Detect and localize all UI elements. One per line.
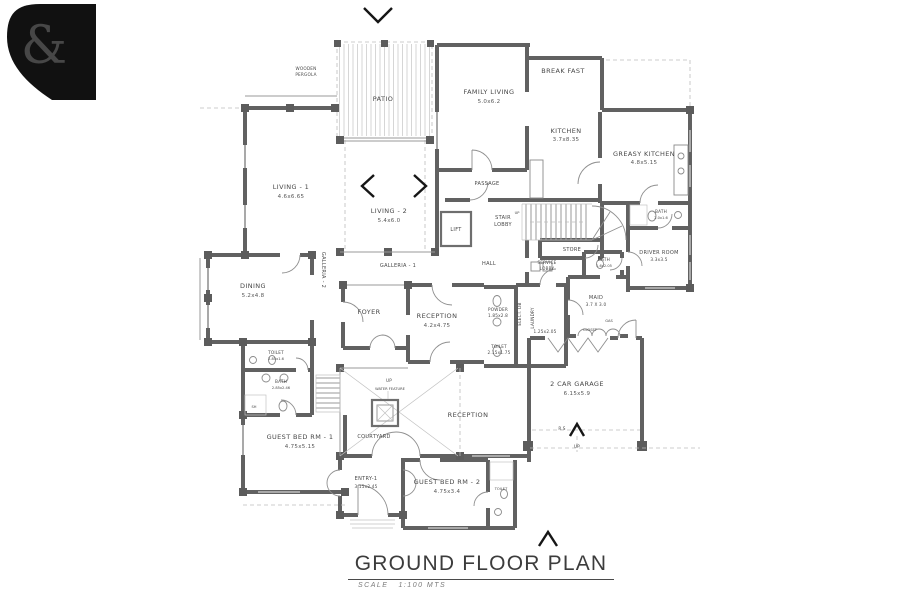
room-label-bath-driver: BATH [655, 209, 667, 214]
room-dims-bath-driver: 2.0x1.6 [654, 216, 668, 220]
room-labels: WOODEN PERGOLA PATIO FAMILY LIVING 5.0x6… [240, 66, 679, 495]
room-label-closet: CLOSET [583, 328, 598, 332]
room-label-hall: HALL [482, 261, 496, 267]
room-dims-entry1: 3.15x2.45 [355, 484, 378, 489]
windows [208, 112, 690, 528]
room-label-reception1: RECEPTION [417, 312, 458, 320]
drawing-title: GROUND FLOOR PLAN [348, 552, 614, 580]
room-label-service-lobby2: LOBBY [540, 266, 555, 271]
room-dims-guest-bed2: 4.75x3.4 [434, 489, 461, 495]
room-label-galleria1: GALLERIA - 1 [380, 263, 416, 269]
room-label-courtyard: COURTYARD [357, 434, 390, 440]
room-dims-guest-bed1: 4.75x5.15 [285, 444, 316, 450]
room-label-foyer: FOYER [357, 308, 380, 316]
room-label-dining: DINING [240, 282, 266, 290]
room-label-toilet-powder: TOILET [490, 344, 507, 349]
room-label-passage: PASSAGE [474, 181, 499, 187]
room-dims-maid: 3.7 X 3.0 [586, 302, 607, 307]
room-label-lift: LIFT [450, 227, 462, 233]
annotation-water-feature: WATER FEATURE [375, 387, 405, 391]
room-label-bath-maid: BATH [598, 257, 610, 262]
room-dims-reception1: 4.2x4.75 [424, 323, 451, 329]
room-label-toilet-guest2: TOILET [494, 487, 508, 491]
section-arrow-bottom [539, 532, 557, 546]
room-dims-bath-guest1: 2.85x2.46 [272, 386, 291, 390]
room-label-toilet-guest1: TOILET [267, 350, 284, 355]
floor-plan-sheet: WOODEN PERGOLA PATIO FAMILY LIVING 5.0x6… [0, 0, 900, 600]
room-label-kitchen: KITCHEN [551, 127, 582, 135]
section-arrow-right [414, 175, 426, 197]
annotation-up-stair: UP [515, 211, 521, 215]
room-label-guest-bed2: GUEST BED RM - 2 [414, 478, 481, 486]
room-dims-toilet-powder: 2.15x1.75 [488, 350, 511, 355]
room-label-patio: PATIO [373, 95, 393, 103]
room-label-reception2: RECEPTION [448, 411, 489, 419]
scale-label: SCALE [358, 582, 388, 589]
room-dims-kitchen: 3.7x8.35 [553, 137, 580, 143]
room-dims-living2: 5.4x6.0 [378, 218, 401, 224]
room-label-elect-db: ELECT. DB [517, 302, 522, 325]
annotation-up-garage: UP [574, 444, 580, 449]
section-arrow-left [362, 175, 374, 197]
room-dims-powder: 1.85x2.8 [488, 313, 508, 318]
room-label-laundry: LAUNDRY [530, 307, 535, 329]
room-dims-toilet-guest1: 2.85x1.6 [268, 357, 285, 361]
room-label-shower: SH [252, 405, 257, 409]
room-dims-garage: 6.15x5.9 [564, 391, 591, 397]
room-dims-bath-maid: 1.6x2.05 [596, 264, 612, 268]
room-dims-driver-room: 3.3x3.5 [650, 257, 667, 262]
section-arrow-top [364, 8, 392, 22]
title-block: GROUND FLOOR PLAN SCALE1:100 MTS [348, 552, 614, 589]
room-label-bath-guest1: BATH [275, 379, 287, 384]
drawing-scale: SCALE1:100 MTS [348, 582, 614, 589]
room-label-stair-lobby2: LOBBY [494, 222, 512, 228]
room-label-service-lobby: SERVICE [537, 260, 556, 265]
room-dims-living1: 4.6x6.65 [278, 194, 305, 200]
room-label-family-living: FAMILY LIVING [464, 88, 515, 96]
room-label-living2: LIVING - 2 [371, 207, 407, 215]
annotation-rs: R.S [558, 426, 565, 431]
room-label-powder: POWDER [488, 307, 508, 312]
room-dims-laundry: 1.25x2.05 [534, 329, 557, 334]
room-label-garage: 2 CAR GARAGE [550, 380, 604, 388]
room-label-pergola2: PERGOLA [295, 72, 316, 77]
room-label-greasy-kitchen: GREASY KITCHEN [613, 150, 675, 158]
walls [208, 45, 690, 528]
room-label-maid: MAID [589, 295, 603, 301]
room-label-store: STORE [563, 247, 581, 253]
room-label-pergola: WOODEN [296, 66, 317, 71]
ampersand-glyph: & [21, 16, 67, 76]
room-label-driver-room: DRIVER ROOM [639, 250, 678, 256]
room-label-stair-lobby: STAIR [495, 215, 511, 221]
room-dims-dining: 5.2x4.8 [242, 293, 265, 299]
scale-value: 1:100 MTS [398, 582, 446, 589]
patio-pergola-area [200, 40, 690, 250]
annotation-up-courtyard: UP [386, 378, 392, 383]
room-label-breakfast: BREAK FAST [541, 67, 585, 75]
brand-logo: & [0, 0, 96, 100]
room-label-gas: GAS [605, 319, 613, 323]
floor-plan-drawing: WOODEN PERGOLA PATIO FAMILY LIVING 5.0x6… [0, 0, 900, 600]
room-label-galleria2: GALLERIA - 2 [320, 252, 326, 288]
room-label-living1: LIVING - 1 [273, 183, 309, 191]
room-dims-greasy-kitchen: 4.8x5.15 [631, 160, 658, 166]
room-label-entry1: ENTRY-1 [355, 476, 378, 482]
room-label-guest-bed1: GUEST BED RM - 1 [267, 433, 334, 441]
room-dims-family-living: 5.0x6.2 [478, 99, 501, 105]
